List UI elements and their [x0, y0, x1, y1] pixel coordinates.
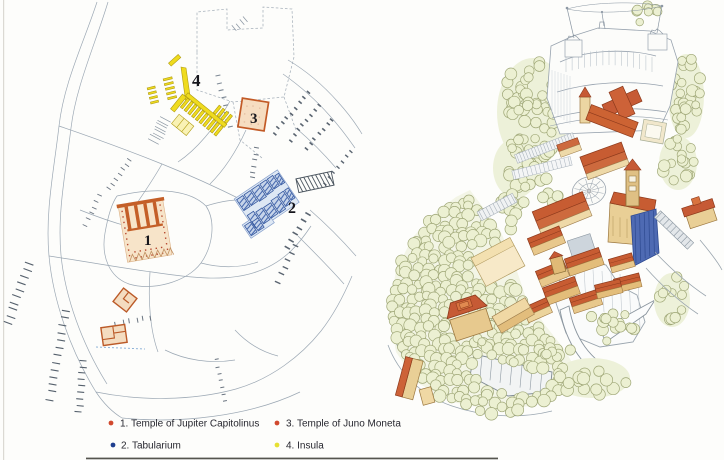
svg-text:2. Tabularium: 2. Tabularium — [121, 441, 181, 452]
svg-text:2: 2 — [288, 200, 296, 217]
svg-text:1: 1 — [144, 233, 152, 249]
svg-text:3. Temple of Juno Moneta: 3. Temple of Juno Moneta — [286, 419, 401, 430]
svg-text:3: 3 — [250, 111, 258, 127]
svg-text:1. Temple of Jupiter Capitolin: 1. Temple of Jupiter Capitolinus — [120, 419, 259, 430]
svg-text:4. Insula: 4. Insula — [286, 441, 324, 452]
svg-text:4: 4 — [192, 71, 201, 90]
